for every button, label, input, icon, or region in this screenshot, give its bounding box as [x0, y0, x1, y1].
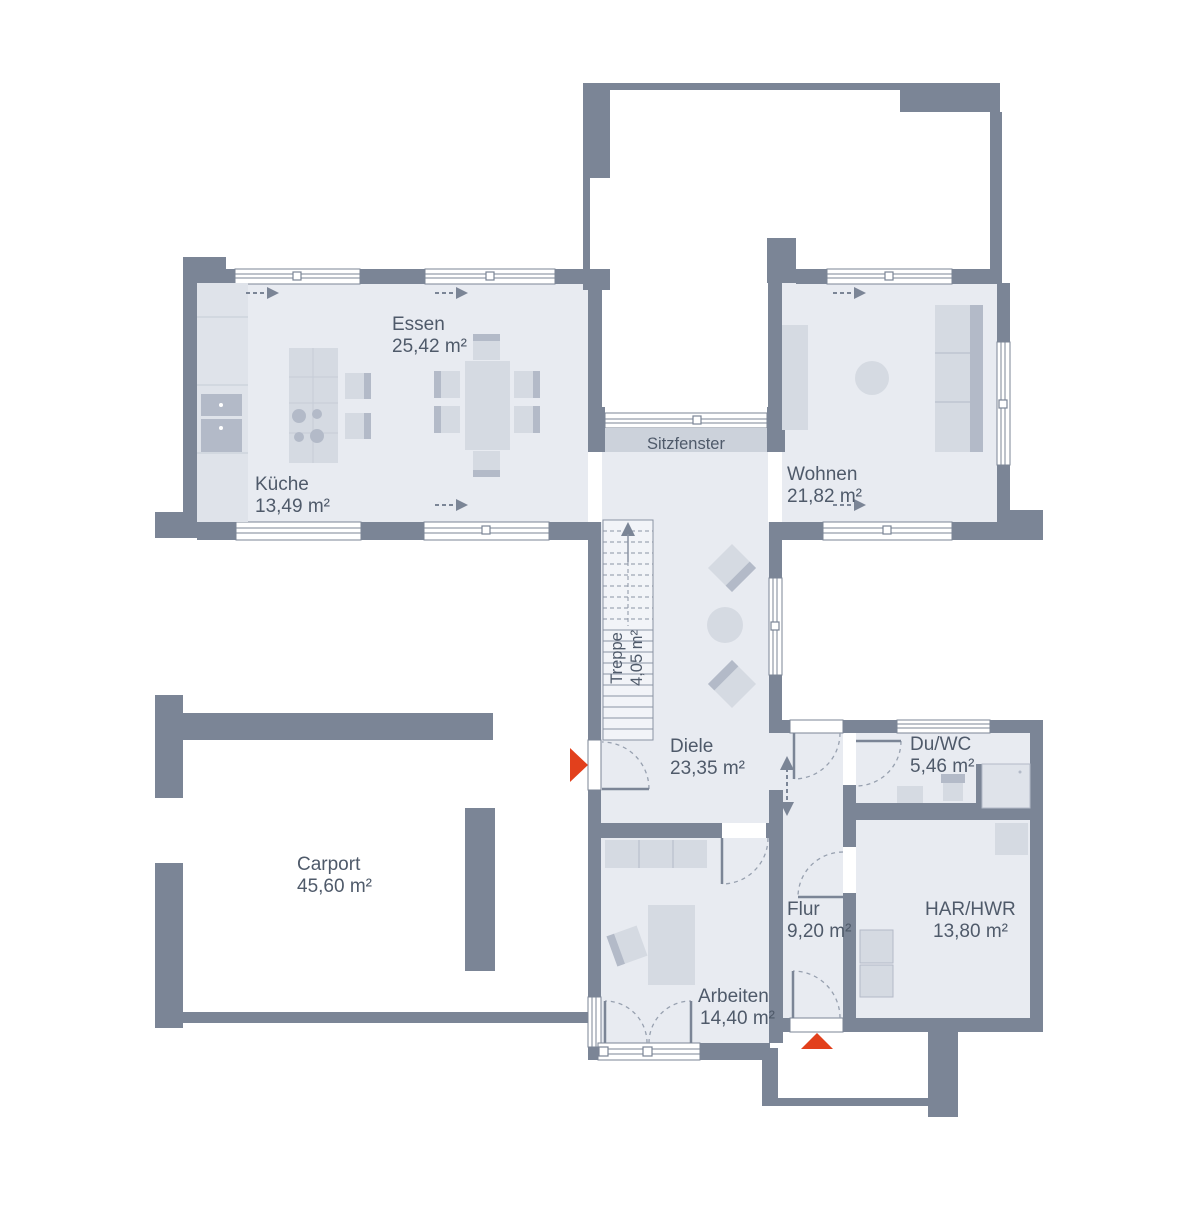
wall-wohnen-top-a	[796, 269, 827, 284]
wall-wohnen-topleft-stub	[767, 238, 796, 283]
wall-diele-left	[588, 522, 601, 740]
label-duwc: Du/WC 5,46 m²	[910, 734, 974, 777]
wall-porch-bottom	[762, 1098, 932, 1106]
label-diele-name: Diele	[670, 736, 713, 757]
window-wohnen-right	[997, 342, 1010, 465]
wall-diele-arbeiten-left	[588, 790, 601, 997]
wall-diele-flur-divider	[769, 790, 783, 1043]
label-essen-name: Essen	[392, 314, 445, 335]
window-wohnen-bottom	[823, 522, 952, 540]
harhwr-cabinet	[995, 823, 1028, 855]
wall-courtyard-topright-block	[900, 83, 1000, 112]
label-kueche-name: Küche	[255, 474, 309, 495]
wall-carport-bottom	[183, 1012, 588, 1023]
floor-plan-drawing: Essen 25,42 m² Küche 13,49 m² Wohnen 21,…	[0, 0, 1200, 1200]
window-diele-right	[769, 578, 782, 675]
wohnen-sideboard	[782, 325, 808, 430]
window-kitchen-top-right	[425, 269, 555, 284]
staircase	[603, 520, 653, 740]
label-treppe-area: 4,05 m²	[628, 630, 646, 686]
kitchen-island	[289, 348, 338, 463]
wall-courtyard-topleft-block	[583, 83, 610, 178]
wall-flur-har-b	[843, 893, 856, 1018]
room-diele-passage-floor	[769, 733, 783, 790]
dryer	[860, 965, 893, 997]
label-kueche-area: 13,49 m²	[255, 496, 330, 517]
duwc-sink	[897, 786, 923, 803]
dining-chair-bottom	[473, 451, 500, 477]
wall-sitzfenster-pier-left	[588, 407, 605, 452]
washing-machine	[860, 930, 893, 963]
island-stool-1	[345, 373, 371, 399]
wall-courtyard-right	[990, 112, 1002, 270]
wohnen-round-table	[855, 361, 889, 395]
diele-round-table	[707, 607, 743, 643]
wall-kitchen-bottomleft-block	[155, 512, 197, 538]
label-arbeiten-name: Arbeiten	[698, 986, 769, 1007]
dining-chair-left-2	[434, 406, 460, 433]
wall-rear-bottom-stub	[783, 1018, 790, 1032]
dining-chair-left-1	[434, 371, 460, 398]
wall-kitchen-bottom-b	[361, 522, 424, 540]
dining-chair-top	[473, 334, 500, 360]
label-duwc-name: Du/WC	[910, 734, 971, 755]
wall-kitchen-topleft-block	[183, 257, 226, 283]
label-sitzfenster: Sitzfenster	[647, 435, 725, 453]
label-flur-area: 9,20 m²	[787, 921, 851, 942]
wall-wohnen-bottom-b	[952, 522, 1043, 540]
label-flur-name: Flur	[787, 899, 820, 920]
window-kitchen-bottom-left	[236, 522, 361, 540]
wohnen-sofa	[935, 305, 983, 452]
wall-rear-right	[1030, 720, 1043, 1032]
wall-kitchen-top-b	[360, 269, 425, 284]
wall-kitchen-bottom-a	[197, 522, 236, 540]
kitchen-counter	[197, 283, 248, 522]
wall-middle-right	[768, 283, 782, 415]
dining-table	[465, 361, 510, 450]
wall-courtyard-top	[610, 83, 900, 90]
label-treppe-name: Treppe	[608, 632, 626, 684]
dining-chair-right-1	[514, 371, 540, 398]
window-kitchen-bottom-right	[424, 522, 549, 540]
wall-rear-top-a	[769, 720, 790, 733]
wall-diele-bottom-a	[601, 823, 722, 838]
window-kitchen-top-left	[235, 269, 360, 284]
label-wohnen-area: 21,82 m²	[787, 486, 862, 507]
window-sitzfenster	[605, 413, 767, 428]
wall-diele-right-a	[769, 522, 782, 578]
dining-chair-right-2	[514, 406, 540, 433]
duwc-toilet	[941, 774, 965, 801]
label-duwc-area: 5,46 m²	[910, 756, 974, 777]
label-essen-area: 25,42 m²	[392, 336, 467, 357]
side-entrance-arrow	[570, 748, 588, 782]
wall-arbeiten-bottom-b	[700, 1043, 770, 1060]
wall-diele-bottom-b	[766, 823, 770, 838]
wall-carport-pillar	[465, 808, 495, 971]
room-flur-floor	[782, 733, 843, 1018]
label-arbeiten: Arbeiten 14,40 m²	[698, 986, 775, 1029]
wall-middle-left	[588, 283, 602, 415]
label-carport-name: Carport	[297, 854, 361, 875]
wall-carport-left-lower	[155, 863, 183, 1028]
duwc-shower	[982, 764, 1030, 808]
label-wohnen: Wohnen 21,82 m²	[787, 464, 862, 507]
label-wohnen-name: Wohnen	[787, 464, 857, 485]
main-entrance-arrow	[801, 1033, 833, 1049]
label-arbeiten-area: 14,40 m²	[700, 1008, 775, 1029]
wall-flur-har-a	[843, 823, 856, 847]
window-wohnen-top	[827, 269, 952, 284]
kitchen-oven	[201, 419, 242, 452]
label-diele-area: 23,35 m²	[670, 758, 745, 779]
wall-rear-top-b	[843, 720, 897, 733]
wall-carport-top-beam	[183, 713, 493, 740]
wall-courtyard-left	[583, 178, 590, 272]
wall-wohnen-top-b	[952, 269, 1002, 284]
arbeiten-sideboard	[605, 840, 707, 868]
wall-wohnen-right-a	[997, 283, 1010, 342]
wall-kitchen-top-a	[226, 269, 235, 284]
wall-porch-column	[928, 1018, 958, 1117]
wall-carport-left-upper	[155, 695, 183, 798]
wall-kitchen-bottom-c	[549, 522, 588, 540]
arbeiten-desk	[648, 905, 695, 985]
floor-plan-page: Essen 25,42 m² Küche 13,49 m² Wohnen 21,…	[0, 0, 1200, 1200]
wall-kitchen-left	[183, 283, 197, 522]
label-carport: Carport 45,60 m²	[297, 854, 372, 897]
wall-shower-stub	[976, 764, 982, 806]
label-harhwr-name: HAR/HWR	[925, 899, 1016, 920]
label-carport-area: 45,60 m²	[297, 876, 372, 897]
window-arbeiten-left	[588, 997, 601, 1047]
island-stool-2	[345, 413, 371, 439]
label-harhwr-area: 13,80 m²	[933, 921, 1008, 942]
window-duwc-top	[897, 720, 990, 733]
label-harhwr: HAR/HWR 13,80 m²	[925, 899, 1016, 942]
